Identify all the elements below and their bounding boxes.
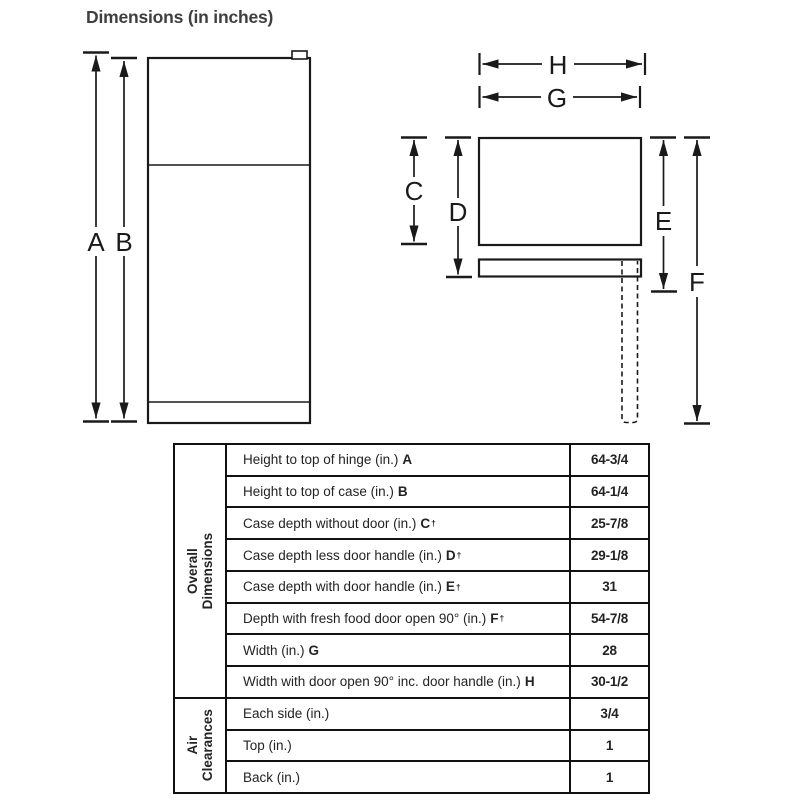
dim-label-e: E: [655, 206, 672, 236]
refrigerator-front-view: A B: [83, 51, 310, 423]
spec-row-value: 31: [571, 572, 648, 602]
section-label: OverallDimensions: [175, 445, 225, 697]
spec-sheet-page: Dimensions (in inches) A: [0, 0, 800, 800]
spec-table: OverallDimensionsHeight to top of hinge …: [173, 443, 650, 794]
dim-label-c: C: [405, 176, 424, 206]
spec-row-value: 25-7/8: [571, 508, 648, 538]
spec-row-value: 1: [571, 731, 648, 761]
dimension-arrow-c: C: [401, 138, 427, 245]
spec-row-label: Height to top of case (in.)B: [227, 477, 569, 507]
spec-row-label: Case depth with door handle (in.)E†: [227, 572, 569, 602]
case-outline-top: [479, 138, 641, 245]
dimension-arrow-d: D: [445, 138, 472, 278]
spec-row-value: 28: [571, 635, 648, 665]
spec-row-value: 30-1/2: [571, 667, 648, 697]
spec-row-label: Depth with fresh food door open 90° (in.…: [227, 604, 569, 634]
dim-label-f: F: [689, 267, 705, 297]
door-open-90-dashed-outline: [622, 261, 638, 423]
spec-row-label: Each side (in.): [227, 699, 569, 729]
spec-row-value: 3/4: [571, 699, 648, 729]
dimension-arrow-f: F: [684, 138, 710, 424]
spec-row-value: 29-1/8: [571, 540, 648, 570]
spec-row-value: 64-1/4: [571, 477, 648, 507]
refrigerator-top-view: H G C: [401, 50, 710, 424]
spec-row-label: Case depth less door handle (in.)D†: [227, 540, 569, 570]
spec-row-label: Back (in.): [227, 762, 569, 792]
spec-row-label: Height to top of hinge (in.)A: [227, 445, 569, 475]
dimension-arrow-e: E: [650, 138, 677, 292]
dimension-arrow-h: H: [480, 50, 646, 80]
spec-row-label: Top (in.): [227, 731, 569, 761]
section-label: AirClearances: [175, 699, 225, 792]
refrigerator-outline: [148, 58, 310, 423]
spec-row-label: Width (in.)G: [227, 635, 569, 665]
spec-row-label: Case depth without door (in.)C†: [227, 508, 569, 538]
dimension-arrow-g: G: [480, 83, 641, 113]
dim-label-b: B: [115, 227, 132, 257]
dimension-arrow-a: A: [83, 53, 109, 422]
dimension-arrow-b: B: [111, 58, 137, 422]
spec-row-label: Width with door open 90° inc. door handl…: [227, 667, 569, 697]
dimension-diagram: A B H: [0, 0, 800, 440]
spec-row-value: 1: [571, 762, 648, 792]
dim-label-g: G: [547, 83, 567, 113]
dim-label-d: D: [449, 197, 468, 227]
dim-label-h: H: [549, 50, 568, 80]
hinge-bump: [292, 51, 307, 59]
spec-row-value: 54-7/8: [571, 604, 648, 634]
spec-row-value: 64-3/4: [571, 445, 648, 475]
door-outline-top: [479, 260, 641, 277]
dim-label-a: A: [87, 227, 105, 257]
